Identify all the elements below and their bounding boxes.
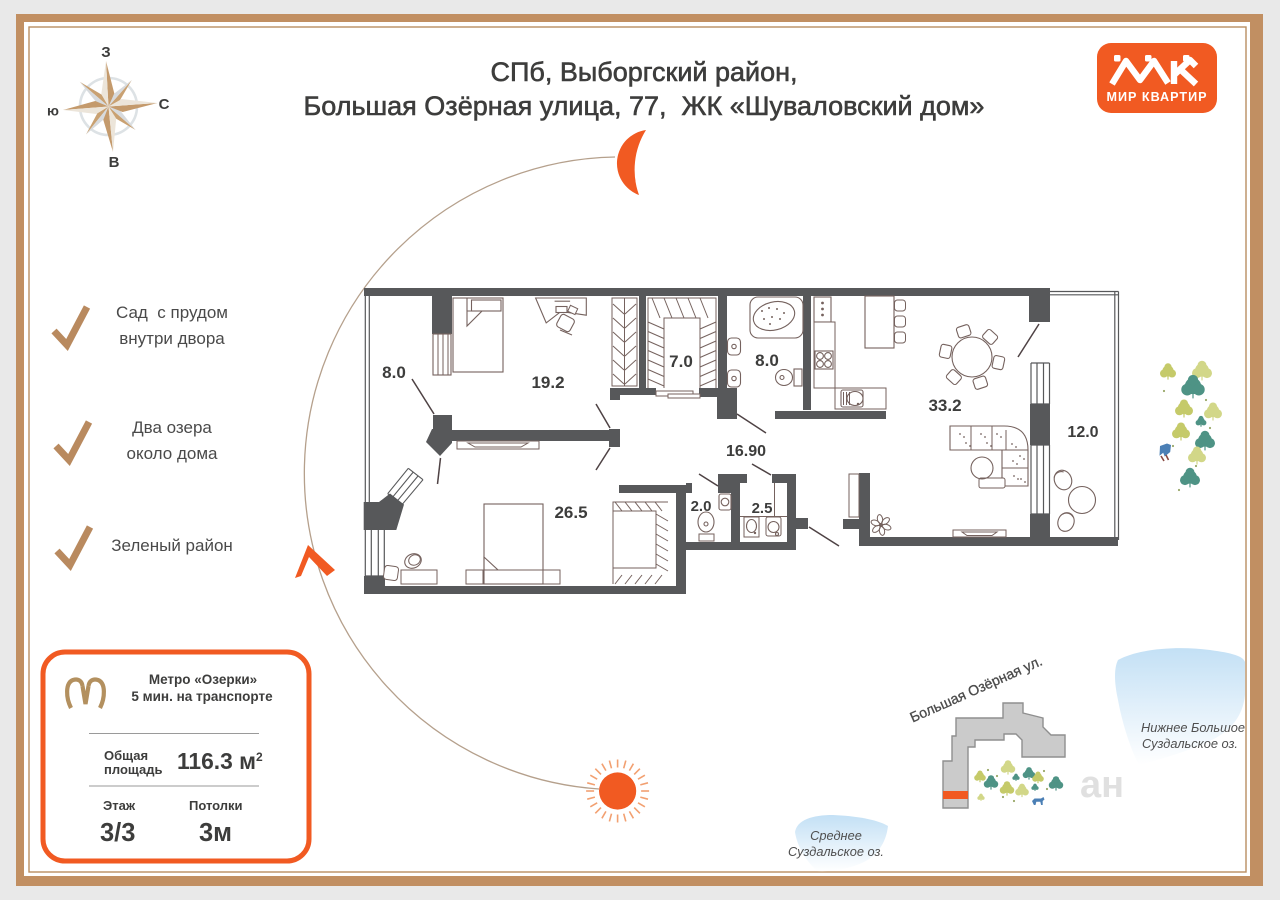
svg-text:ю: ю <box>47 103 59 119</box>
svg-text:5 мин. на транспорте: 5 мин. на транспорте <box>131 689 273 704</box>
svg-text:Метро «Озерки»: Метро «Озерки» <box>149 672 257 687</box>
svg-text:площадь: площадь <box>104 762 162 777</box>
svg-text:Суздальское оз.: Суздальское оз. <box>1142 736 1238 751</box>
svg-text:Большая Озёрная улица, 77, ЖК: Большая Озёрная улица, 77, ЖК «Шуваловск… <box>304 91 985 121</box>
svg-text:7.0: 7.0 <box>669 352 693 371</box>
svg-text:В: В <box>109 154 120 171</box>
svg-text:СПб, Выборгский район,: СПб, Выборгский район, <box>490 57 797 87</box>
svg-text:Этаж: Этаж <box>103 798 136 813</box>
svg-text:19.2: 19.2 <box>531 373 564 392</box>
svg-text:26.5: 26.5 <box>554 503 587 522</box>
svg-text:Общая: Общая <box>104 748 148 763</box>
svg-text:около дома: около дома <box>127 444 219 463</box>
svg-text:Нижнее Большое: Нижнее Большое <box>1141 720 1245 735</box>
svg-text:Два озера: Два озера <box>132 418 212 437</box>
svg-text:Суздальское оз.: Суздальское оз. <box>788 844 884 859</box>
svg-text:8.0: 8.0 <box>382 363 406 382</box>
svg-text:ан: ан <box>1080 764 1124 806</box>
svg-text:Среднее: Среднее <box>810 828 862 843</box>
svg-text:Зеленый район: Зеленый район <box>111 536 233 555</box>
svg-text:12.0: 12.0 <box>1067 424 1098 441</box>
svg-text:МИР КВАРТИР: МИР КВАРТИР <box>1106 90 1207 104</box>
svg-text:Потолки: Потолки <box>189 798 243 813</box>
svg-text:2.0: 2.0 <box>691 498 712 515</box>
svg-text:Сад с прудом: Сад с прудом <box>116 303 228 322</box>
svg-text:3м: 3м <box>199 819 232 847</box>
svg-text:2.5: 2.5 <box>752 500 773 517</box>
svg-text:З: З <box>101 44 110 61</box>
svg-text:116.3 м2: 116.3 м2 <box>177 748 263 774</box>
svg-text:3/3: 3/3 <box>100 819 135 847</box>
svg-text:16.90: 16.90 <box>726 443 766 460</box>
svg-text:8.0: 8.0 <box>755 351 779 370</box>
svg-text:С: С <box>159 96 170 113</box>
svg-text:внутри двора: внутри двора <box>119 329 225 348</box>
svg-text:33.2: 33.2 <box>928 396 961 415</box>
